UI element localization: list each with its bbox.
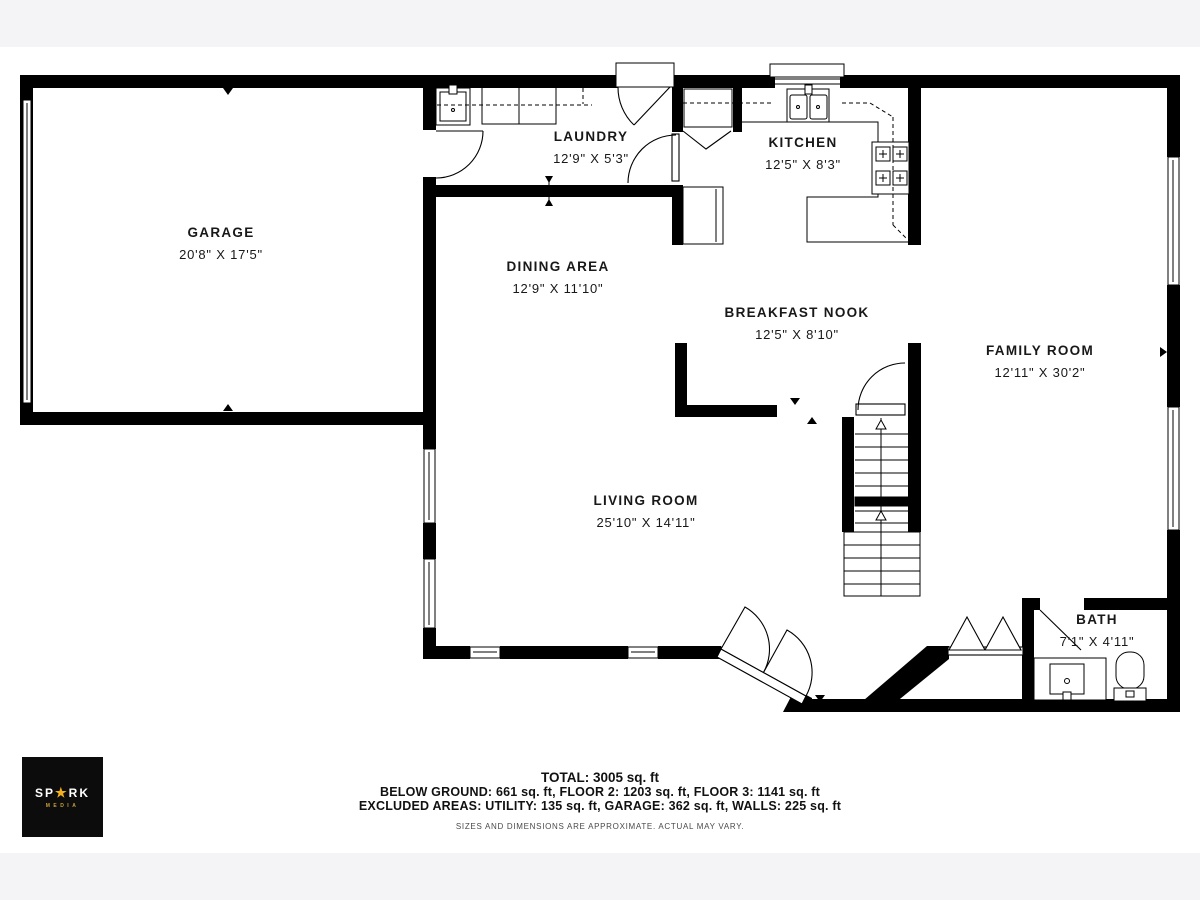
room-dims: 12'9" X 5'3"	[553, 148, 629, 169]
utility-closet-interior	[684, 89, 732, 127]
room-dims: 12'5" X 8'3"	[765, 154, 841, 175]
room-dims: 25'10" X 14'11"	[593, 512, 698, 533]
room-name: FAMILY ROOM	[986, 340, 1094, 362]
bath-vanity	[1034, 658, 1106, 700]
room-name: DINING AREA	[506, 256, 609, 278]
laundry-exterior-door	[618, 87, 670, 125]
foyer-closet-bifold-door	[948, 617, 1023, 655]
kitchen-window-sill	[770, 64, 844, 77]
logo-subtitle: MEDIA	[46, 803, 80, 809]
logo-wordmark: SP★RK	[35, 786, 90, 800]
disclaimer: SIZES AND DIMENSIONS ARE APPROXIMATE. AC…	[0, 822, 1200, 831]
room-label-laundry: LAUNDRY 12'9" X 5'3"	[553, 126, 629, 169]
room-label-dining: DINING AREA 12'9" X 11'10"	[506, 256, 609, 299]
stairs-door	[856, 363, 905, 415]
doors	[436, 87, 1081, 704]
room-label-garage: GARAGE 20'8" X 17'5"	[179, 222, 263, 265]
excluded-areas: EXCLUDED AREAS: UTILITY: 135 sq. ft, GAR…	[0, 800, 1200, 814]
room-label-kitchen: KITCHEN 12'5" X 8'3"	[765, 132, 841, 175]
refrigerator	[683, 187, 723, 244]
laundry-kitchen-door	[628, 134, 679, 183]
stove	[872, 142, 909, 194]
utility-closet-bifold-door	[683, 131, 731, 149]
floor-plan-page: { "rooms": { "garage": {"name": "GARAGE"…	[0, 0, 1200, 900]
bath-fixtures	[1034, 652, 1146, 701]
room-name: LAUNDRY	[553, 126, 629, 148]
walls	[20, 75, 1180, 712]
entry-stoop	[616, 63, 674, 87]
stairs-up-arrow	[876, 511, 886, 520]
room-label-nook: BREAKFAST NOOK 12'5" X 8'10"	[725, 302, 870, 345]
room-name: GARAGE	[179, 222, 263, 244]
logo-prefix: SP	[35, 786, 55, 800]
floor-areas: BELOW GROUND: 661 sq. ft, FLOOR 2: 1203 …	[0, 786, 1200, 800]
room-name: BREAKFAST NOOK	[725, 302, 870, 324]
room-dims: 20'8" X 17'5"	[179, 244, 263, 265]
toilet	[1114, 652, 1146, 701]
logo-suffix: RK	[69, 786, 90, 800]
star-icon: ★	[55, 785, 69, 800]
room-dims: 12'11" X 30'2"	[986, 362, 1094, 383]
area-summary: TOTAL: 3005 sq. ft BELOW GROUND: 661 sq.…	[0, 770, 1200, 831]
room-dims: 12'5" X 8'10"	[725, 324, 870, 345]
garage-laundry-door	[436, 131, 483, 178]
total-area: TOTAL: 3005 sq. ft	[0, 770, 1200, 786]
spark-media-logo: SP★RK MEDIA	[22, 757, 103, 837]
room-name: LIVING ROOM	[593, 490, 698, 512]
stairs-up-arrow	[876, 420, 886, 429]
kitchen-sink	[787, 85, 829, 122]
room-dims: 7'1" X 4'11"	[1060, 631, 1135, 652]
room-label-family: FAMILY ROOM 12'11" X 30'2"	[986, 340, 1094, 383]
room-name: KITCHEN	[765, 132, 841, 154]
entry-french-doors	[717, 607, 812, 704]
room-label-living: LIVING ROOM 25'10" X 14'11"	[593, 490, 698, 533]
room-name: BATH	[1060, 609, 1135, 631]
room-dims: 12'9" X 11'10"	[506, 278, 609, 299]
room-label-bath: BATH 7'1" X 4'11"	[1060, 609, 1135, 652]
